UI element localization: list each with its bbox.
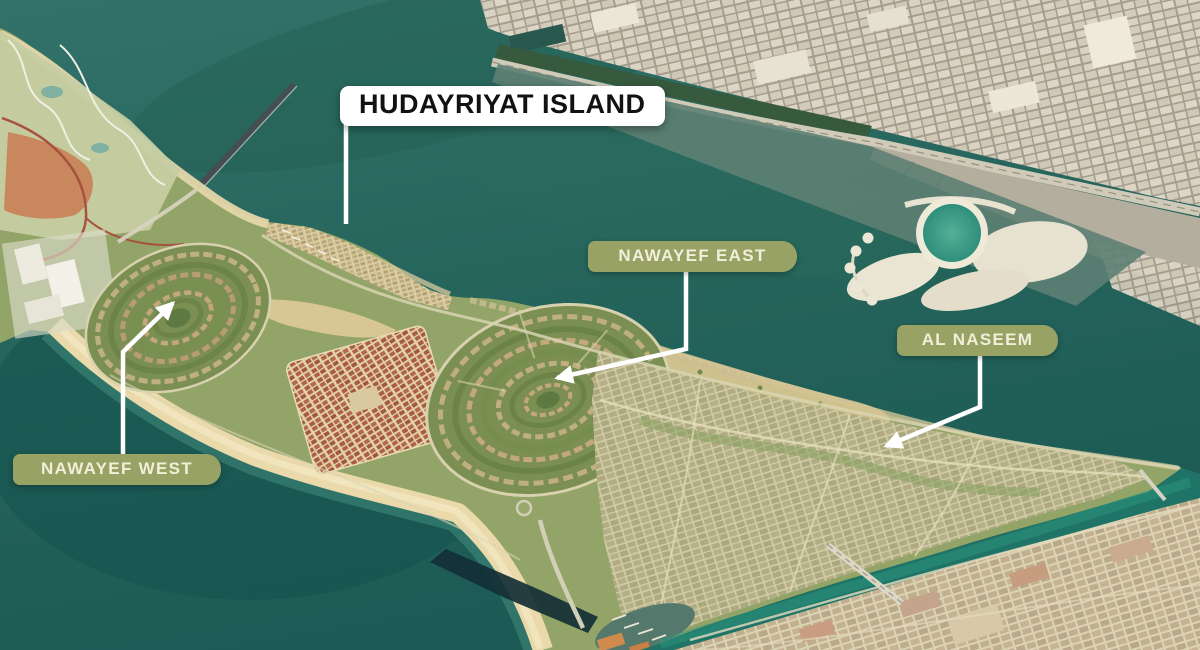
region-label-nawayef-west: NAWAYEF WEST xyxy=(13,454,221,485)
region-label-nawayef-east: NAWAYEF EAST xyxy=(588,241,797,272)
region-label-al-naseem: AL NASEEM xyxy=(897,325,1058,356)
map-screenshot: HUDAYRIYAT ISLAND NAWAYEF EAST AL NASEEM… xyxy=(0,0,1200,650)
island-title-label: HUDAYRIYAT ISLAND xyxy=(340,86,665,126)
